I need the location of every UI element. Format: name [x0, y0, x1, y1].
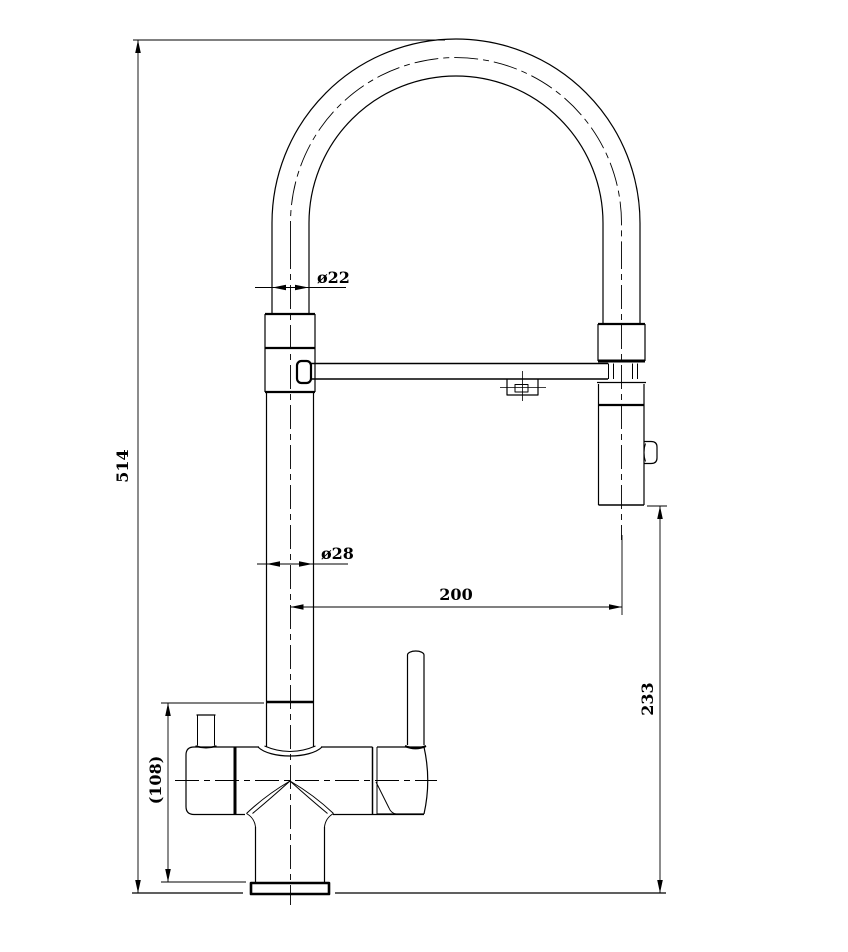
dimension-riser-diameter: ø28: [257, 544, 354, 567]
dim-514-arrow-up: [135, 40, 141, 53]
dim-o22-arrow-left: [273, 285, 287, 290]
centerlines: [175, 58, 622, 905]
collar-sides: [265, 314, 315, 392]
handle-lever-diagonal: [376, 782, 396, 814]
riser-pipe: [266, 392, 314, 747]
handle-lever-rod: [408, 651, 425, 745]
base-flange: [251, 883, 329, 894]
faucet-technical-drawing: 514 (108) ø22 ø28 200 233: [0, 0, 848, 952]
dimension-head-to-deck: 233: [638, 506, 667, 893]
dim-o22-arrow-right: [295, 285, 309, 290]
dim-o28-arrow-left: [267, 561, 281, 566]
cone-outer-lines: [247, 781, 334, 814]
dimension-hose-diameter: ø22: [255, 268, 350, 290]
dim-233-arrow-up: [657, 506, 663, 519]
body-lower-cone: [247, 781, 334, 894]
sprayhead-neck: [609, 364, 638, 380]
dim-200-arrow-right: [609, 604, 622, 610]
dim-514-arrow-down: [135, 880, 141, 893]
technical-drawing-canvas: 514 (108) ø22 ø28 200 233: [0, 0, 848, 952]
right-handle: [376, 651, 428, 814]
base-column-sides: [256, 827, 325, 883]
sprayhead-body: [597, 383, 657, 506]
sprayhead-button: [644, 442, 657, 464]
support-arm: [297, 361, 608, 401]
dim-108-label: (108): [146, 756, 165, 805]
dim-o28-arrow-right: [299, 561, 313, 566]
dim-o22-label: ø22: [317, 268, 350, 287]
hose-clip-inner: [515, 385, 528, 393]
neck-verticals: [609, 364, 638, 380]
arm-bar: [311, 364, 608, 380]
dimension-body-height: (108): [146, 703, 264, 882]
dim-233-label: 233: [638, 682, 657, 715]
cone-inner-lines: [253, 781, 328, 814]
arm-clamp: [297, 361, 311, 383]
knob-sides: [198, 715, 215, 746]
spout-inner-contour: [309, 76, 603, 325]
dim-200-label: 200: [439, 585, 472, 604]
dim-o28-label: ø28: [321, 544, 354, 563]
dim-200-arrow-left: [291, 604, 304, 610]
cone-fillets: [247, 814, 334, 828]
dim-233-arrow-down: [657, 880, 663, 893]
dim-514-label: 514: [113, 449, 132, 482]
riser-sides: [267, 392, 314, 747]
dim-108-arrow-down: [165, 869, 171, 882]
sprayhead-button-arc: [644, 444, 646, 462]
riser-body-fillet-inner: [265, 746, 316, 752]
spout-centerline-arc: [291, 58, 622, 245]
left-handle-knob: [196, 715, 217, 748]
riser-collar: [265, 314, 315, 392]
dim-108-arrow-up: [165, 703, 171, 716]
